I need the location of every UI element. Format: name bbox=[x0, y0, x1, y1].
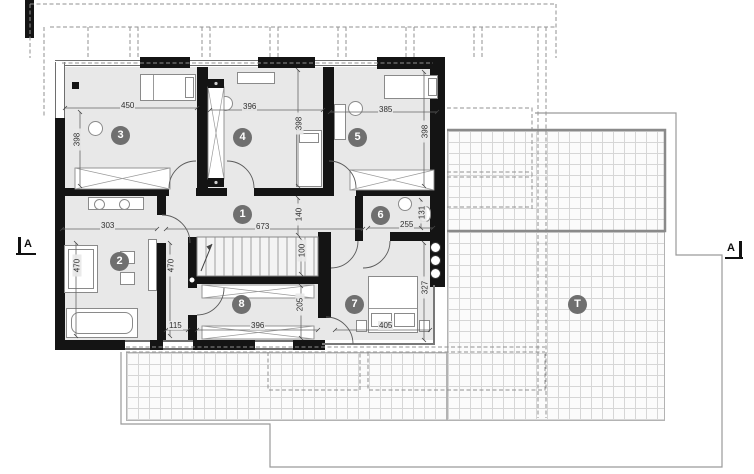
dim-bath2-right: 470 bbox=[167, 255, 176, 277]
dim-hall-length: 673 bbox=[255, 222, 270, 231]
dim-room5-height: 398 bbox=[421, 121, 430, 143]
dim-hall-width: 140 bbox=[295, 204, 304, 226]
dim-nook-width: 115 bbox=[168, 321, 183, 330]
dim-room8-height: 205 bbox=[296, 294, 305, 316]
room-badge-6: 6 bbox=[371, 206, 390, 225]
floor-plan: 450 396 385 398 398 398 140 303 673 255 … bbox=[0, 0, 754, 474]
room-badge-1: 1 bbox=[233, 205, 252, 224]
section-underline-right bbox=[725, 257, 743, 259]
dim-room4-width: 396 bbox=[242, 102, 257, 111]
dim-room5-width: 385 bbox=[378, 105, 393, 114]
section-bar-right bbox=[739, 241, 742, 257]
dim-room7-width: 405 bbox=[378, 321, 393, 330]
plan-linework bbox=[0, 0, 754, 474]
room-badge-5: 5 bbox=[348, 128, 367, 147]
dim-room7-height: 327 bbox=[421, 277, 430, 299]
section-label-right: A bbox=[727, 242, 735, 254]
dim-room3-width: 450 bbox=[120, 101, 135, 110]
room-badge-8: 8 bbox=[232, 295, 251, 314]
section-label-left: A bbox=[24, 238, 32, 250]
room-badge-7: 7 bbox=[345, 295, 364, 314]
dim-room4-height: 398 bbox=[295, 113, 304, 135]
dim-room3-height: 398 bbox=[73, 129, 82, 151]
dim-room8-width: 396 bbox=[250, 321, 265, 330]
room-badge-2: 2 bbox=[110, 252, 129, 271]
dim-bath6-width: 255 bbox=[399, 220, 414, 229]
dim-room2-width: 303 bbox=[100, 221, 115, 230]
room-badge-4: 4 bbox=[233, 128, 252, 147]
dim-bath6-depth: 131 bbox=[418, 202, 427, 224]
dim-bath2-left: 470 bbox=[73, 255, 82, 277]
room-badge-3: 3 bbox=[111, 126, 130, 145]
dim-stair-width: 100 bbox=[298, 240, 307, 262]
terrace-badge: T bbox=[568, 295, 587, 314]
section-underline-left bbox=[16, 253, 36, 255]
section-bar-left bbox=[18, 237, 21, 253]
